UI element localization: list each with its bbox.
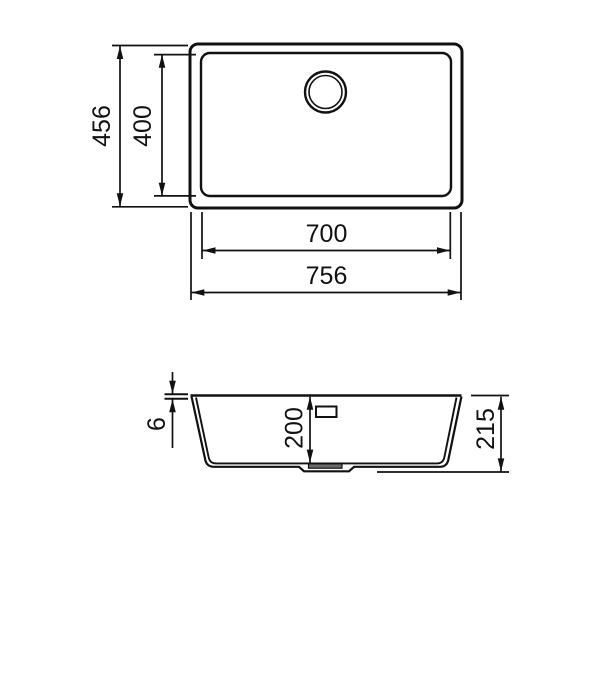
dim-label-bowl-depth: 400	[129, 105, 157, 147]
bowl-outer-profile	[192, 397, 462, 472]
sink-outer-rim	[190, 44, 462, 208]
drawing-canvas: 456 400 700 756	[0, 0, 600, 689]
dim-label-overall-height: 215	[472, 408, 500, 450]
sink-bowl-edge	[201, 53, 451, 196]
dim-label-overall-width: 756	[306, 262, 348, 290]
overflow-hole	[316, 407, 337, 418]
arrowhead-right	[448, 289, 461, 296]
arrowhead-down	[159, 183, 166, 196]
dimension-200: 200	[281, 397, 314, 463]
arrowhead-down	[169, 381, 176, 394]
dim-label-overall-depth: 456	[88, 105, 116, 147]
arrowhead-up	[498, 397, 505, 410]
arrowhead-right	[437, 247, 450, 254]
arrowhead-down	[117, 193, 124, 206]
dimension-400: 400	[129, 55, 196, 196]
section-view: 6 200 215	[143, 372, 509, 472]
arrowhead-up	[117, 46, 124, 59]
arrowhead-down	[498, 458, 505, 471]
dimension-700: 700	[202, 212, 450, 259]
dim-label-section-bowl-depth: 200	[281, 407, 309, 449]
arrowhead-left	[191, 289, 204, 296]
drain-inner-circle	[309, 76, 342, 109]
dim-label-bowl-width: 700	[306, 220, 348, 248]
dimension-6: 6	[143, 372, 188, 448]
top-view: 456 400 700 756	[88, 44, 462, 300]
drain-outer-circle	[305, 72, 346, 113]
arrowhead-up	[159, 55, 166, 68]
arrowhead-down	[307, 450, 314, 463]
technical-drawing: 456 400 700 756	[0, 0, 600, 689]
arrowhead-up	[169, 399, 176, 412]
arrowhead-left	[203, 247, 216, 254]
drain-recess	[309, 464, 343, 468]
dim-label-rim-height: 6	[143, 417, 171, 431]
